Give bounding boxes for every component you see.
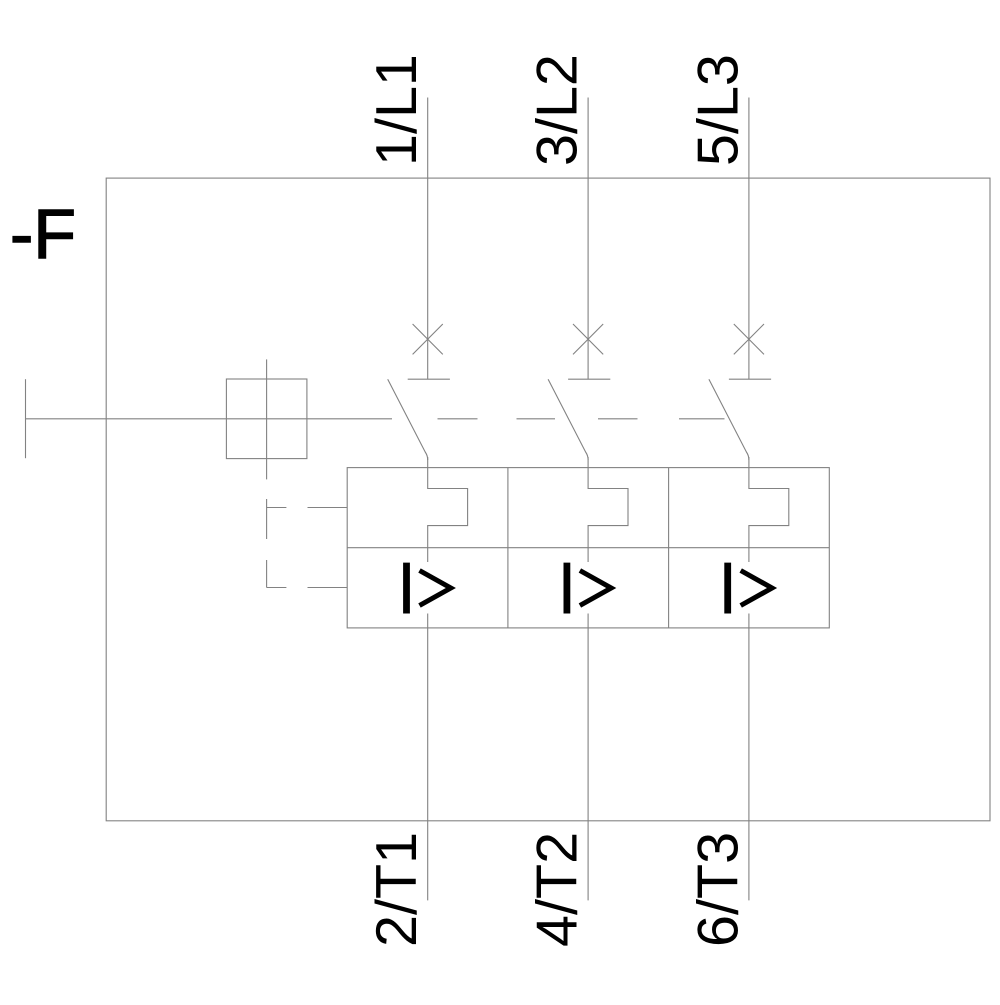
svg-text:4/T2: 4/T2 [526, 832, 590, 947]
svg-text:3/L2: 3/L2 [526, 54, 590, 166]
svg-text:6/T3: 6/T3 [686, 832, 750, 947]
svg-text:-F: -F [10, 195, 76, 273]
svg-text:1/L1: 1/L1 [365, 54, 429, 166]
svg-text:2/T1: 2/T1 [365, 832, 429, 947]
svg-text:5/L3: 5/L3 [686, 54, 750, 166]
